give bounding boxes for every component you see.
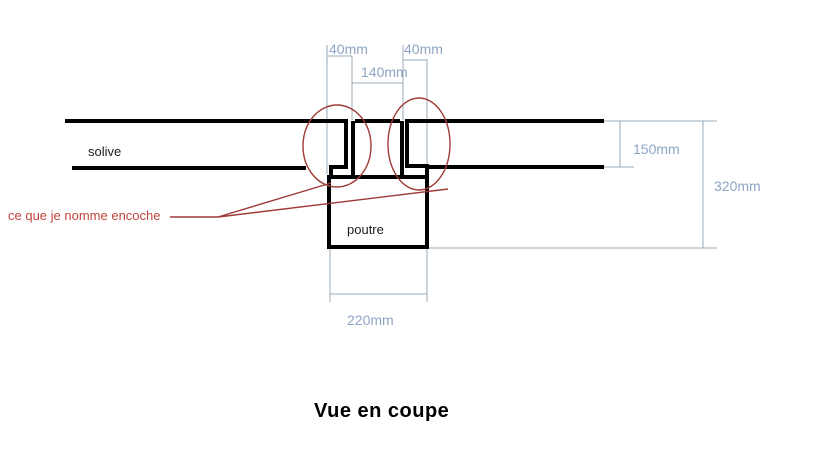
dim-label-joist-height: 150mm	[633, 141, 680, 157]
dim-label-beam-width: 220mm	[347, 312, 394, 328]
left-notch-outline	[331, 119, 353, 177]
beam-label: poutre	[347, 222, 384, 237]
dimension-lines	[327, 45, 717, 302]
cross-section-diagram: solive poutre ce que je nomme encoche 40…	[0, 0, 819, 460]
diagram-linework	[0, 0, 819, 460]
dim-label-notch-spacing: 140mm	[361, 64, 408, 80]
notch-annotation-text: ce que je nomme encoche	[8, 208, 160, 223]
annotation-leader-to-left-notch	[218, 183, 331, 217]
left-notch-highlight-ellipse	[303, 105, 371, 187]
right-notch-outline	[402, 119, 427, 177]
dim-label-overall-height: 320mm	[714, 178, 761, 194]
dim-label-left-notch-width: 40mm	[329, 41, 368, 57]
page-title: Vue en coupe	[314, 400, 449, 423]
dim-label-right-notch-width: 40mm	[404, 41, 443, 57]
joist-label: solive	[88, 144, 121, 159]
timber-outline	[65, 119, 604, 247]
annotation-leader-to-right-notch	[218, 189, 448, 217]
